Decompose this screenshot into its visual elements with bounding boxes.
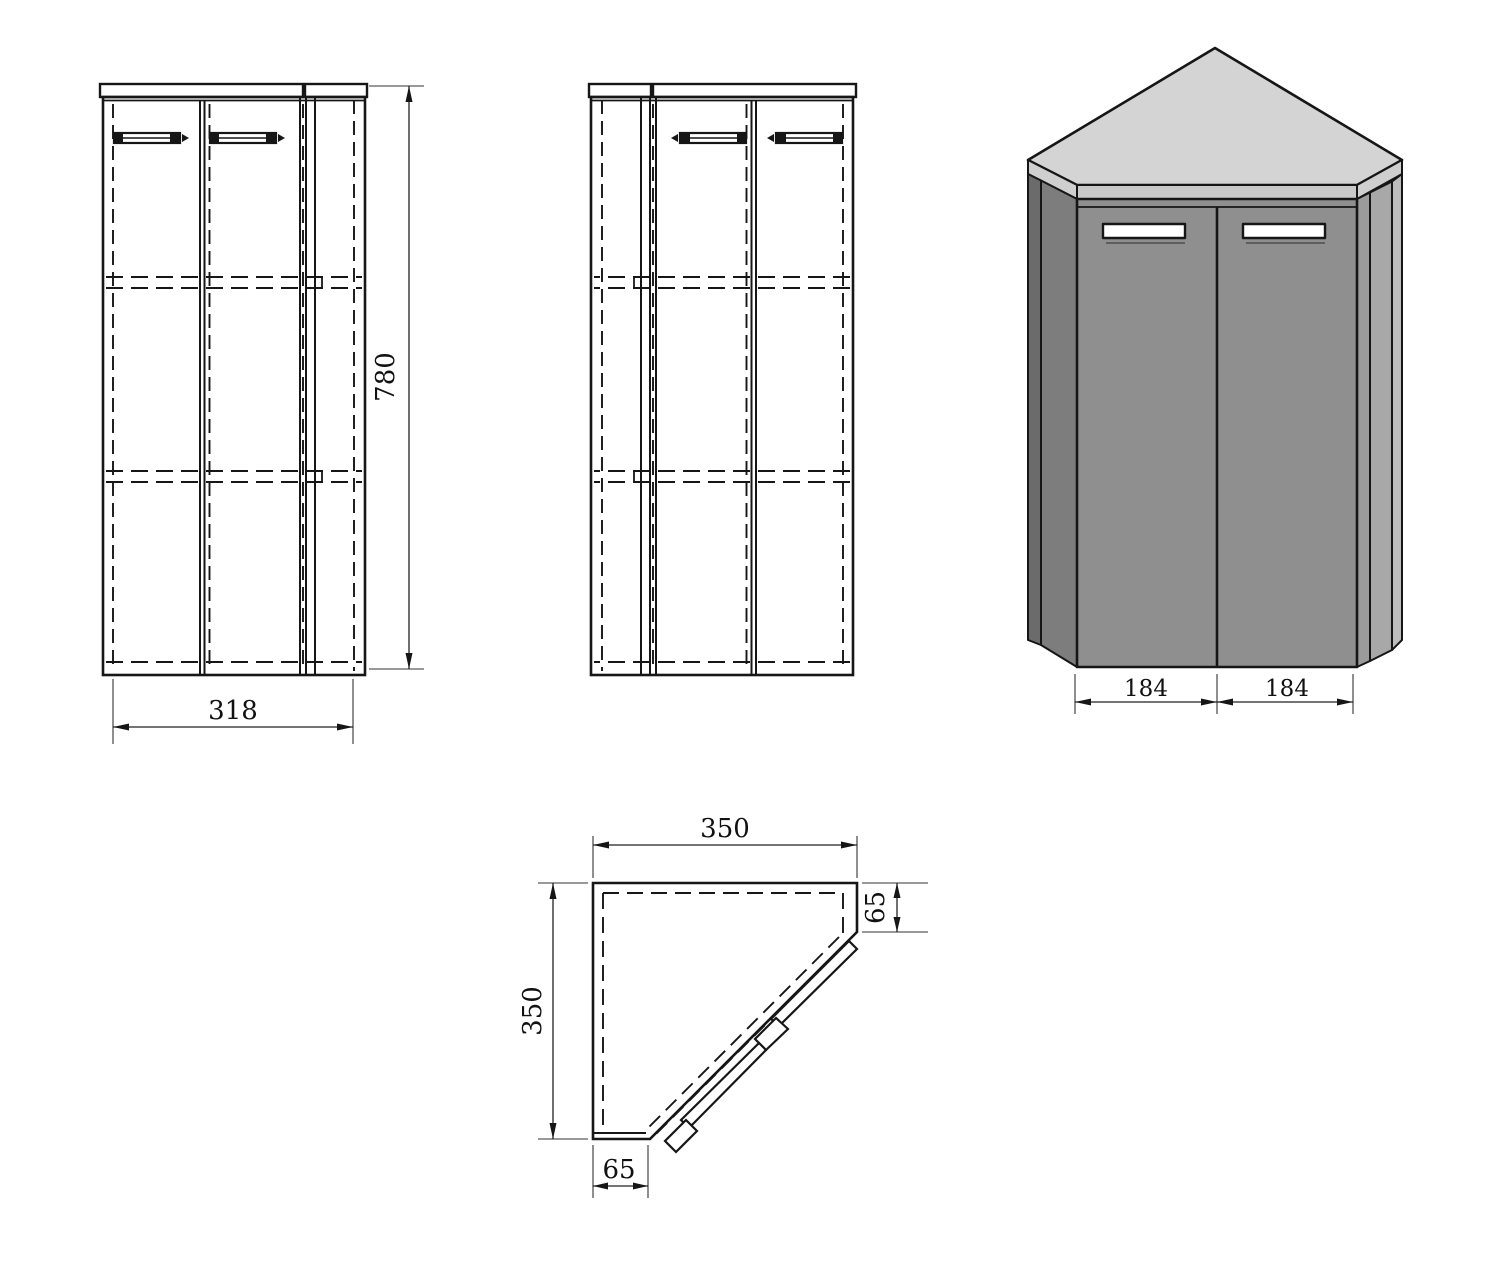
plan-carcass-outline [593, 883, 857, 1139]
plan-door-left [681, 1043, 766, 1128]
iso-top-surface [1028, 48, 1402, 185]
dimension-height: 780 [369, 86, 424, 669]
dimension-plan-side-right: 65 [861, 883, 928, 932]
dim-label-65-bottom: 65 [602, 1155, 635, 1185]
iso-side-panel-right-edge [1392, 174, 1402, 650]
dim-label-350-top: 350 [700, 814, 750, 844]
front-view: 780 318 [100, 84, 424, 744]
iso-side-panel-left-edge [1028, 174, 1041, 645]
plan-view: 350 350 65 65 [518, 814, 928, 1198]
dim-label-780: 780 [371, 352, 401, 402]
iso-top-rim-front [1077, 185, 1357, 199]
technical-drawing-page: 780 318 [0, 0, 1500, 1264]
dimension-width: 318 [113, 679, 353, 744]
side-view [589, 84, 856, 675]
dim-label-350-left: 350 [518, 986, 548, 1036]
iso-hinge-strip-right [1357, 193, 1370, 668]
dim-label-184-left: 184 [1124, 676, 1168, 702]
dimension-plan-side-bottom: 65 [593, 1145, 648, 1198]
iso-side-panel-left [1041, 181, 1077, 668]
dimension-plan-width: 350 [593, 814, 857, 878]
dim-label-318: 318 [208, 696, 258, 726]
plan-door-left-handle [665, 1120, 697, 1152]
dim-label-65-right: 65 [861, 891, 891, 924]
dimension-doors: 184 184 [1075, 674, 1353, 714]
plan-door-right [771, 941, 857, 1026]
iso-view: 184 184 [1028, 48, 1402, 714]
dim-label-184-right: 184 [1265, 676, 1309, 702]
iso-side-panel-right [1370, 182, 1392, 662]
dimension-plan-depth: 350 [518, 883, 588, 1139]
